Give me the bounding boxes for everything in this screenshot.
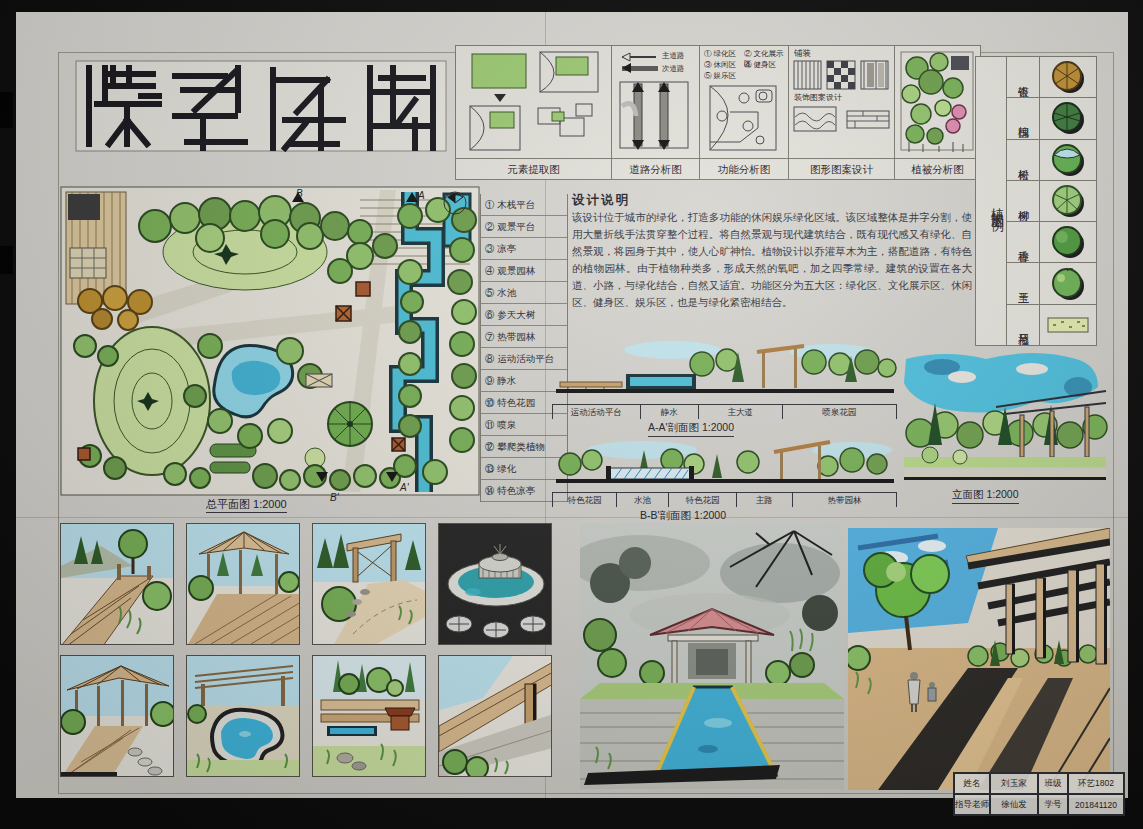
plant-name: 银杏 xyxy=(1007,57,1040,97)
sketch-covered-bridge xyxy=(60,655,174,777)
pine-tree-icon xyxy=(1046,141,1090,179)
zone-label: ① 绿化区 xyxy=(704,49,736,59)
legend-item: ③ 凉亭 xyxy=(481,238,567,260)
title-block-label: 学号 xyxy=(1038,794,1068,815)
panel-element-extraction: 元素提取图 xyxy=(456,46,611,179)
title-block-value: 刘玉家 xyxy=(990,773,1038,794)
sketch-grid xyxy=(60,523,552,777)
paving-label: 铺装 xyxy=(794,48,811,59)
stylized-title-lettering xyxy=(75,60,447,152)
willow-tree-icon xyxy=(1046,182,1090,220)
plant-name: 国槐 xyxy=(1007,98,1040,138)
segment-label: 水池 xyxy=(616,492,668,507)
north-arrow-icon xyxy=(442,190,468,216)
road-legend-secondary: 次道路 xyxy=(662,64,685,74)
ginkgo-tree-icon xyxy=(1046,58,1090,96)
design-board-photo: 元素提取图 主道路 次道路 道路分析图 xyxy=(0,0,1143,829)
section-aa-caption: A-A'剖面图 1:2000 xyxy=(648,421,734,437)
title-block: 姓名 刘玉家 班级 环艺1802 指导老师 徐仙发 学号 201841120 xyxy=(953,772,1125,816)
title-block-label: 姓名 xyxy=(954,773,990,794)
section-marker-a-prime: A' xyxy=(400,482,409,493)
legend-item: ⑤ 水池 xyxy=(481,282,567,304)
plant-legend-header: 植被图例 xyxy=(976,57,1007,345)
title-block-label: 班级 xyxy=(1038,773,1068,794)
zone-label: ④ 健身区 xyxy=(744,60,776,70)
manila-grass-swatch xyxy=(1044,312,1092,338)
magnolia-tree-icon xyxy=(1046,265,1090,303)
perspective-pavilion-pool xyxy=(580,523,844,789)
sketch-gazebo xyxy=(186,523,300,645)
perspective-pergola-corridor xyxy=(848,528,1110,790)
camphor-tree-icon xyxy=(1046,223,1090,261)
title-block-value: 201841120 xyxy=(1068,794,1124,815)
plant-legend-rows: 银杏 国槐 松树 柳树 香樟 玉兰 xyxy=(1007,57,1096,345)
plant-name: 松树 xyxy=(1007,140,1040,180)
section-bb-labels: 特色花园 水池 特色花园 主路 热带园林 xyxy=(552,492,897,507)
section-bb-drawing xyxy=(552,438,897,488)
legend-item: ① 木栈平台 xyxy=(481,194,567,216)
fold-line xyxy=(16,517,1128,518)
vegetation-analysis-diagram xyxy=(895,46,980,158)
element-extraction-diagram xyxy=(456,46,611,158)
pagoda-tree-icon xyxy=(1046,99,1090,137)
title-block-value: 徐仙发 xyxy=(990,794,1038,815)
panel-caption: 道路分析图 xyxy=(612,158,699,179)
segment-label: 特色花园 xyxy=(552,492,616,507)
zone-label: ⑤ 娱乐区 xyxy=(704,71,736,81)
function-analysis-diagram: ① 绿化区 ② 文化展示区 ③ 休闲区 ④ 健身区 ⑤ 娱乐区 xyxy=(700,46,788,158)
decor-pattern-label: 装饰图案设计 xyxy=(794,93,842,104)
title-block-value: 环艺1802 xyxy=(1068,773,1124,794)
segment-label: 主路 xyxy=(736,492,792,507)
elevation-drawing xyxy=(900,345,1110,485)
sketch-fountain xyxy=(438,523,552,645)
title-block-label: 指导老师 xyxy=(954,794,990,815)
panel-road-analysis: 主道路 次道路 道路分析图 xyxy=(611,46,699,179)
plant-legend-row: 松树 xyxy=(1007,139,1096,180)
segment-label: 主大道 xyxy=(698,404,782,419)
analysis-strip: 元素提取图 主道路 次道路 道路分析图 xyxy=(455,45,981,180)
legend-item: ② 观景平台 xyxy=(481,216,567,238)
legend-item: ④ 观景园林 xyxy=(481,260,567,282)
plant-legend-row: 柳树 xyxy=(1007,180,1096,221)
pattern-design-diagram: 铺装 装饰图案设计 xyxy=(789,46,894,158)
sketch-boardwalk xyxy=(60,523,174,645)
master-plan-drawing xyxy=(60,186,480,496)
segment-label: 热带园林 xyxy=(792,492,897,507)
master-plan-caption: 总平面图 1:2000 xyxy=(206,497,287,513)
plant-legend-row: 玉兰 xyxy=(1007,262,1096,303)
design-notes-title: 设计说明 xyxy=(572,192,972,209)
sketch-planter-water xyxy=(312,655,426,777)
plant-name: 香樟 xyxy=(1007,222,1040,262)
segment-label: 运动活动平台 xyxy=(552,404,640,419)
plant-legend-row: 国槐 xyxy=(1007,97,1096,138)
segment-label: 特色花园 xyxy=(668,492,736,507)
road-legend-main: 主道路 xyxy=(662,51,685,61)
panel-caption: 植被分析图 xyxy=(895,158,980,179)
segment-label: 静水 xyxy=(640,404,698,419)
section-marker-b: B xyxy=(296,188,303,199)
plant-legend: 植被图例 银杏 国槐 松树 柳树 香樟 玉兰 xyxy=(975,56,1097,346)
plant-name: 柳树 xyxy=(1007,181,1040,221)
sketch-pergola-beam xyxy=(438,655,552,777)
design-notes-body: 该设计位于城市的绿化，打造多功能的休闲娱乐绿化区域。该区域整体是井字分割，使用大… xyxy=(572,209,972,311)
road-analysis-diagram: 主道路 次道路 xyxy=(612,46,699,158)
sketch-trellis-gate xyxy=(312,523,426,645)
elevation-caption: 立面图 1:2000 xyxy=(952,488,1019,504)
photo-edge-mark xyxy=(0,92,13,128)
zone-label: ③ 休闲区 xyxy=(704,60,736,70)
panel-caption: 功能分析图 xyxy=(700,158,788,179)
segment-label: 喷泉花园 xyxy=(782,404,897,419)
legend-item: ⑥ 参天大树 xyxy=(481,304,567,326)
panel-function-analysis: ① 绿化区 ② 文化展示区 ③ 休闲区 ④ 健身区 ⑤ 娱乐区 功能分析图 xyxy=(699,46,788,179)
plant-name: 马尼拉 xyxy=(1007,305,1040,345)
sketch-pool-pergola xyxy=(186,655,300,777)
plant-legend-row: 银杏 xyxy=(1007,57,1096,97)
plant-legend-row: 香樟 xyxy=(1007,221,1096,262)
panel-pattern-design: 铺装 装饰图案设计 图形图案设计 xyxy=(788,46,894,179)
plant-name: 玉兰 xyxy=(1007,263,1040,303)
panel-vegetation-analysis: 植被分析图 xyxy=(894,46,980,179)
design-notes: 设计说明 该设计位于城市的绿化，打造多功能的休闲娱乐绿化区域。该区域整体是井字分… xyxy=(572,192,972,311)
section-aa-labels: 运动活动平台 静水 主大道 喷泉花园 xyxy=(552,404,897,419)
panel-caption: 图形图案设计 xyxy=(789,158,894,179)
section-marker-b-prime: B' xyxy=(330,492,339,503)
section-aa-drawing xyxy=(552,338,897,402)
panel-caption: 元素提取图 xyxy=(456,158,611,179)
plant-legend-row: 马尼拉 xyxy=(1007,304,1096,345)
section-marker-a: A xyxy=(418,190,425,201)
photo-edge-mark xyxy=(0,246,13,274)
